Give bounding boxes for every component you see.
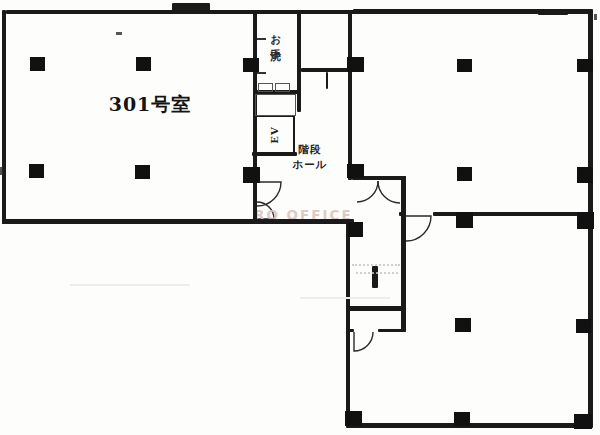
structural-column — [347, 164, 364, 178]
wall — [172, 3, 210, 11]
structural-column — [136, 57, 151, 71]
stair-hall-line2: ホール — [285, 157, 335, 172]
stall-partition — [257, 72, 266, 74]
stair-hall-label: 階段 ホール — [285, 142, 335, 172]
wall — [297, 10, 301, 112]
structural-column — [243, 167, 260, 183]
structural-column — [576, 319, 591, 333]
structural-column — [454, 412, 470, 426]
structural-column — [577, 212, 594, 229]
wall — [348, 10, 352, 180]
toilet-fixture — [275, 83, 290, 92]
wall — [399, 212, 406, 216]
shaft-marker-bar — [372, 266, 378, 288]
structural-column — [577, 59, 593, 72]
structural-column — [345, 411, 362, 426]
wall — [2, 219, 354, 224]
structural-column — [243, 58, 259, 72]
scan-speck — [594, 14, 597, 20]
structural-column — [574, 414, 592, 429]
door-arc — [354, 332, 373, 351]
structural-column — [348, 222, 363, 237]
elevator-label: EV — [269, 126, 280, 143]
room-301-label: 301号室 — [98, 92, 202, 118]
structural-column — [456, 212, 473, 228]
wall — [348, 329, 354, 332]
door-arc — [406, 216, 431, 241]
door-leaf-tick — [326, 72, 328, 89]
door-arc — [378, 181, 400, 203]
door-arc — [357, 181, 378, 202]
washbasin-counter — [255, 94, 296, 116]
wall — [252, 152, 297, 156]
scan-speck — [0, 167, 3, 175]
blurred-label — [352, 264, 400, 266]
scan-streak — [70, 284, 190, 286]
structural-column — [455, 318, 471, 332]
scan-speck — [116, 32, 122, 35]
structural-column — [347, 57, 364, 72]
toilet-fixture — [258, 83, 273, 92]
wall — [348, 306, 404, 311]
structural-column — [30, 57, 45, 71]
scan-streak — [300, 297, 390, 299]
structural-column — [457, 59, 472, 72]
wall — [538, 9, 568, 15]
stall-partition — [257, 38, 266, 40]
structural-column — [457, 167, 472, 181]
floor-plan: EV 301号室 お手洗い 階段 ホール RO OFFICE — [0, 0, 600, 435]
blurred-label — [356, 272, 398, 274]
structural-column — [29, 164, 44, 178]
wall — [346, 222, 350, 425]
wall — [378, 329, 406, 332]
restroom-label: お手洗い — [269, 26, 283, 58]
wall — [2, 10, 6, 224]
structural-column — [135, 165, 150, 179]
structural-column — [577, 167, 593, 183]
